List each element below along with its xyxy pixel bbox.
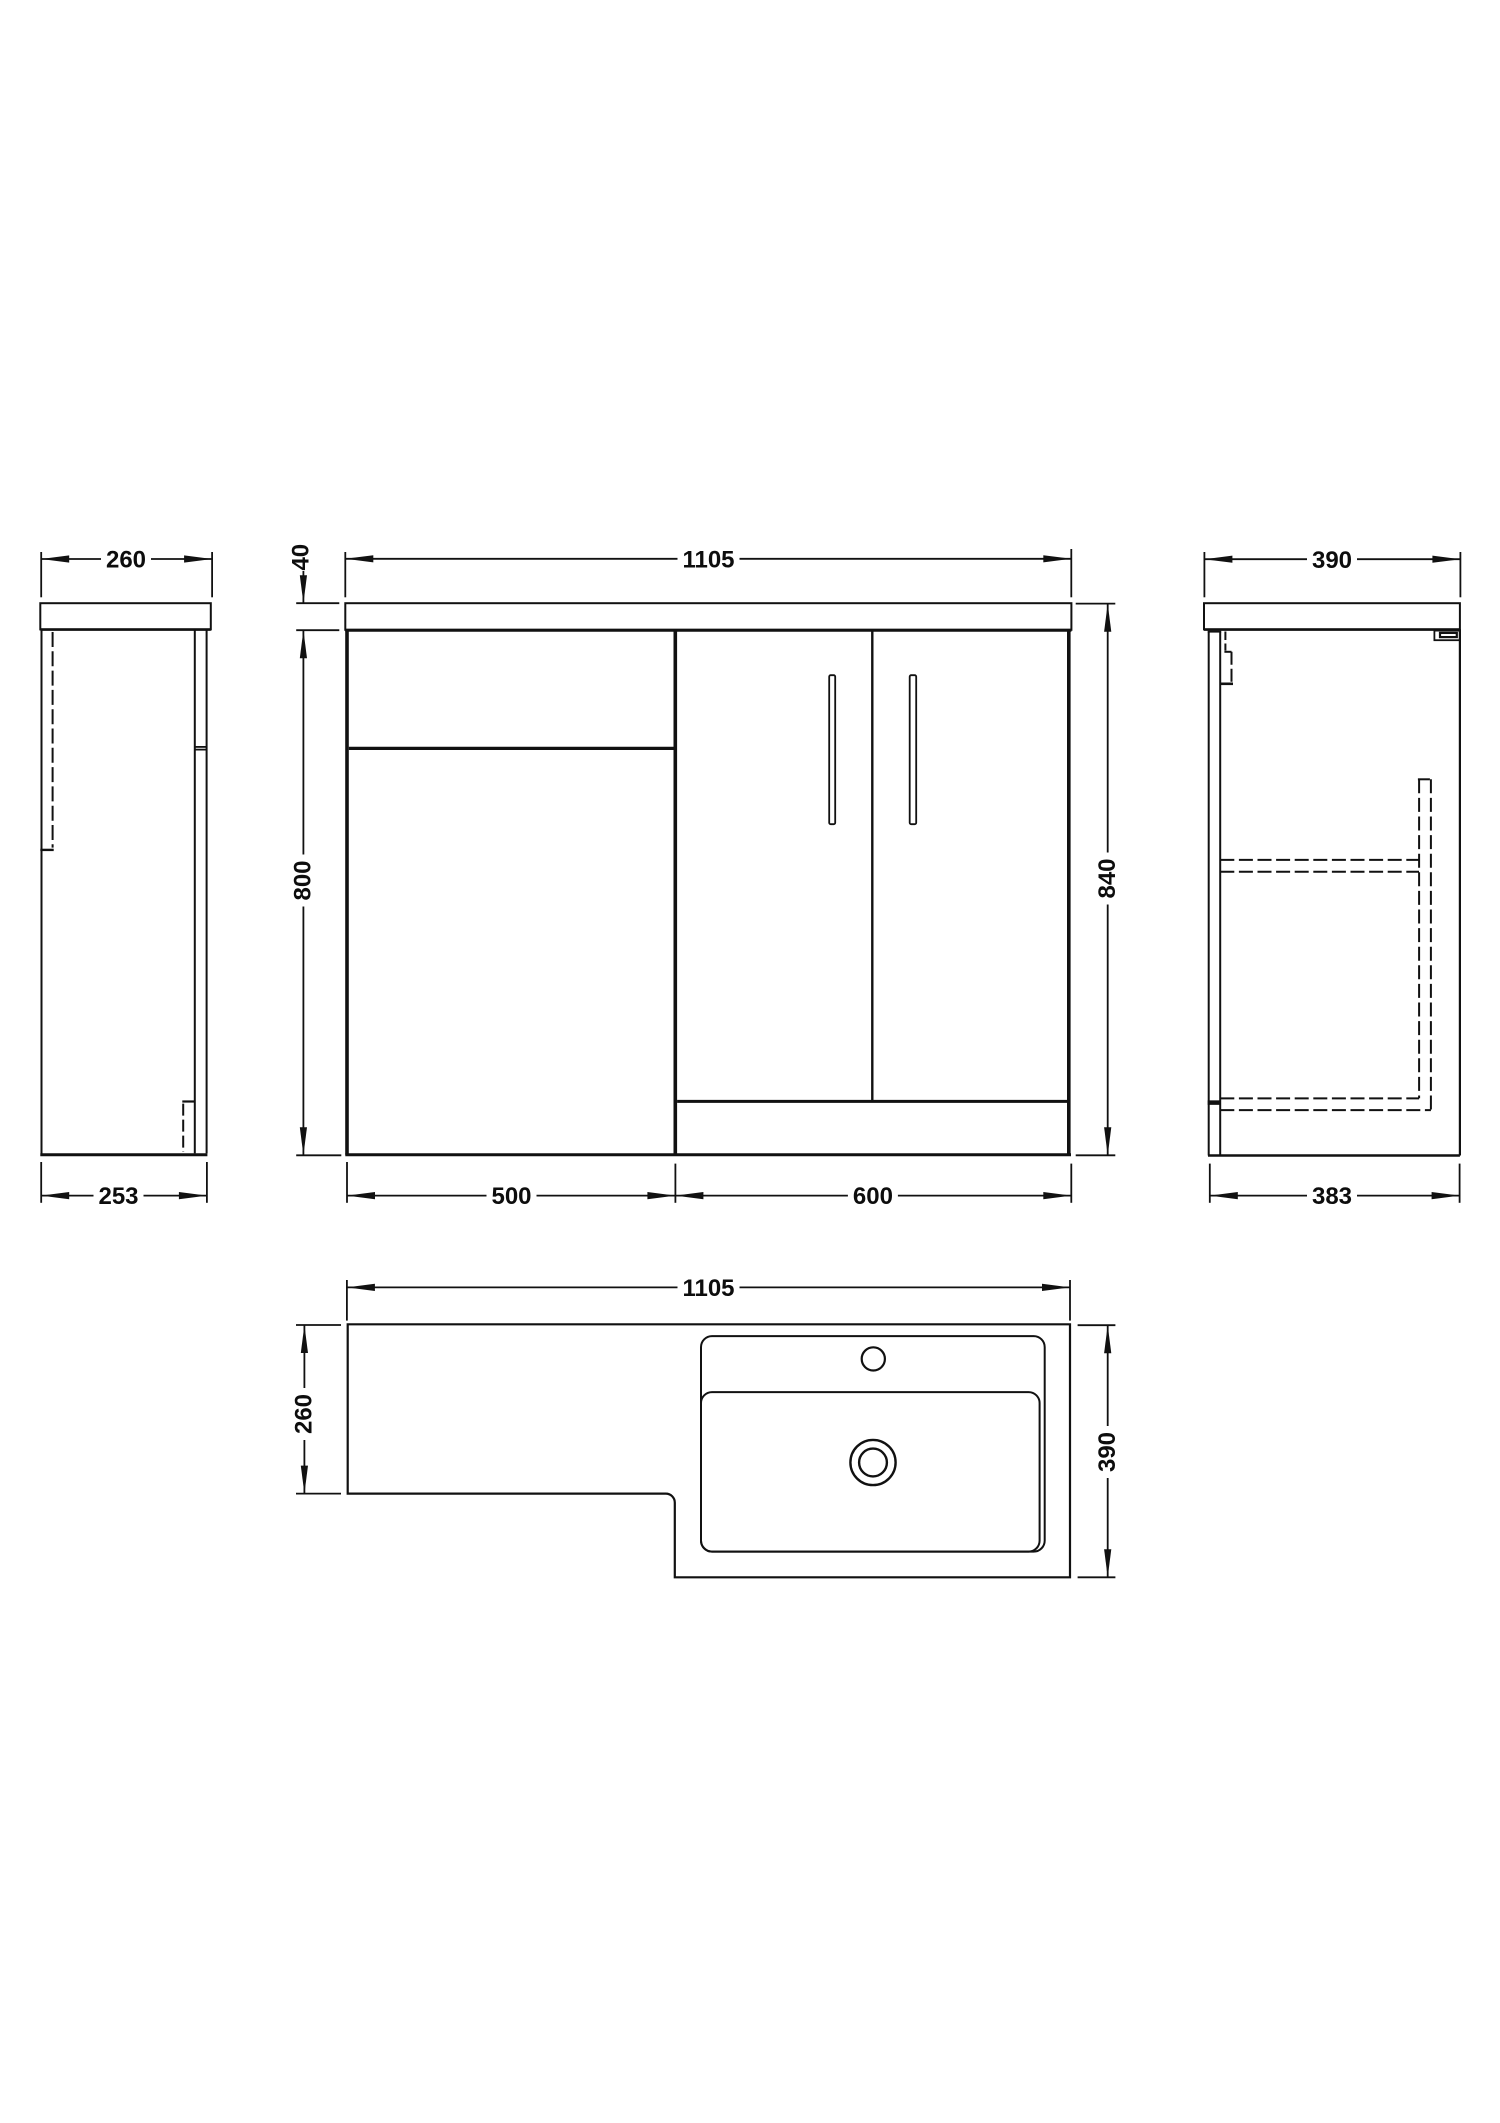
svg-text:260: 260 xyxy=(291,1394,318,1434)
svg-text:500: 500 xyxy=(491,1183,531,1210)
svg-text:383: 383 xyxy=(1312,1183,1352,1210)
svg-text:40: 40 xyxy=(287,544,314,571)
svg-text:260: 260 xyxy=(106,547,146,574)
svg-text:1105: 1105 xyxy=(682,1275,734,1302)
svg-text:800: 800 xyxy=(290,860,317,900)
svg-text:1105: 1105 xyxy=(682,546,734,573)
svg-text:840: 840 xyxy=(1094,858,1121,898)
svg-text:390: 390 xyxy=(1094,1432,1121,1472)
svg-text:390: 390 xyxy=(1312,547,1352,574)
svg-text:600: 600 xyxy=(853,1183,893,1210)
svg-text:253: 253 xyxy=(98,1183,138,1210)
